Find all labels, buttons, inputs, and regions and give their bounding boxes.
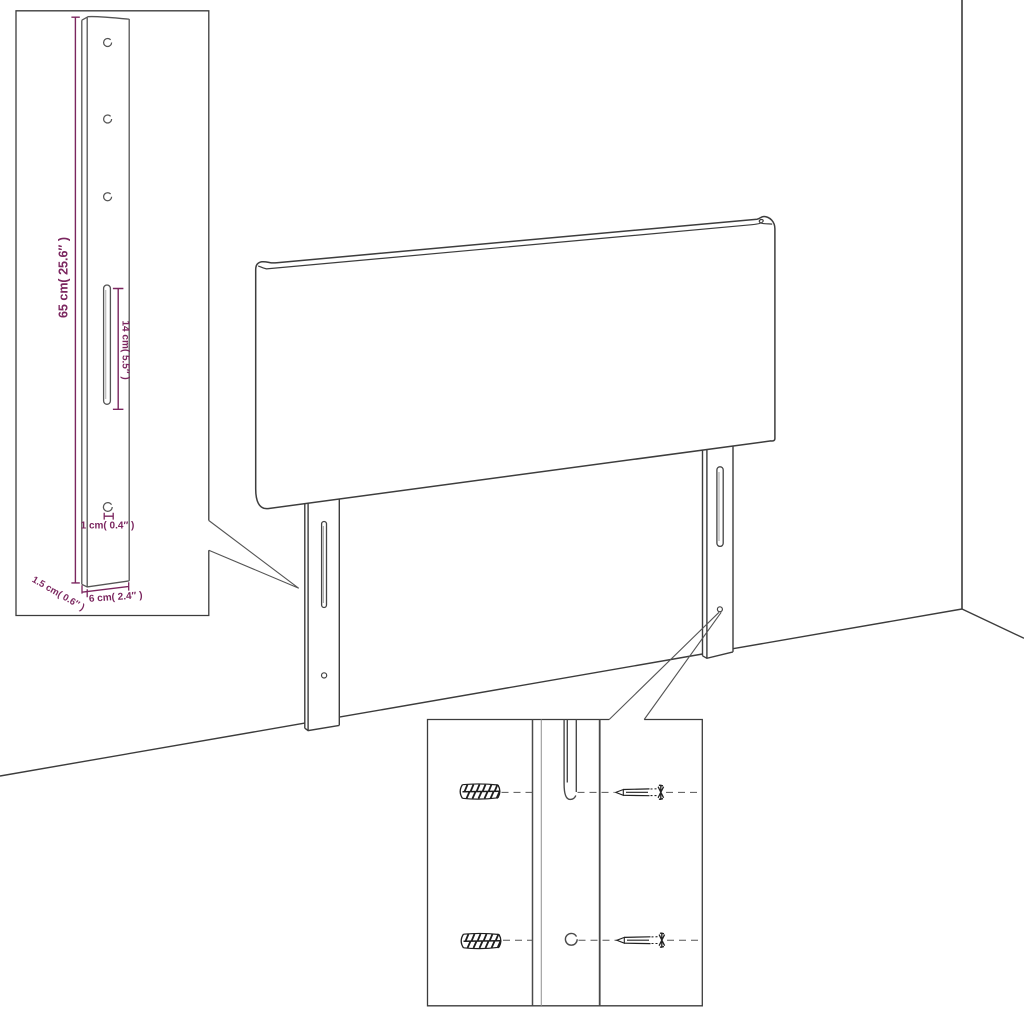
- svg-text:1.5 cm( 0.6″ ): 1.5 cm( 0.6″ ): [30, 574, 87, 613]
- svg-text:65 cm( 25.6″ ): 65 cm( 25.6″ ): [57, 237, 71, 318]
- svg-text:1 cm( 0.4″ ): 1 cm( 0.4″ ): [81, 521, 135, 532]
- svg-text:6 cm( 2.4″ ): 6 cm( 2.4″ ): [89, 590, 143, 605]
- svg-text:14 cm( 5.5″ ): 14 cm( 5.5″ ): [119, 320, 130, 379]
